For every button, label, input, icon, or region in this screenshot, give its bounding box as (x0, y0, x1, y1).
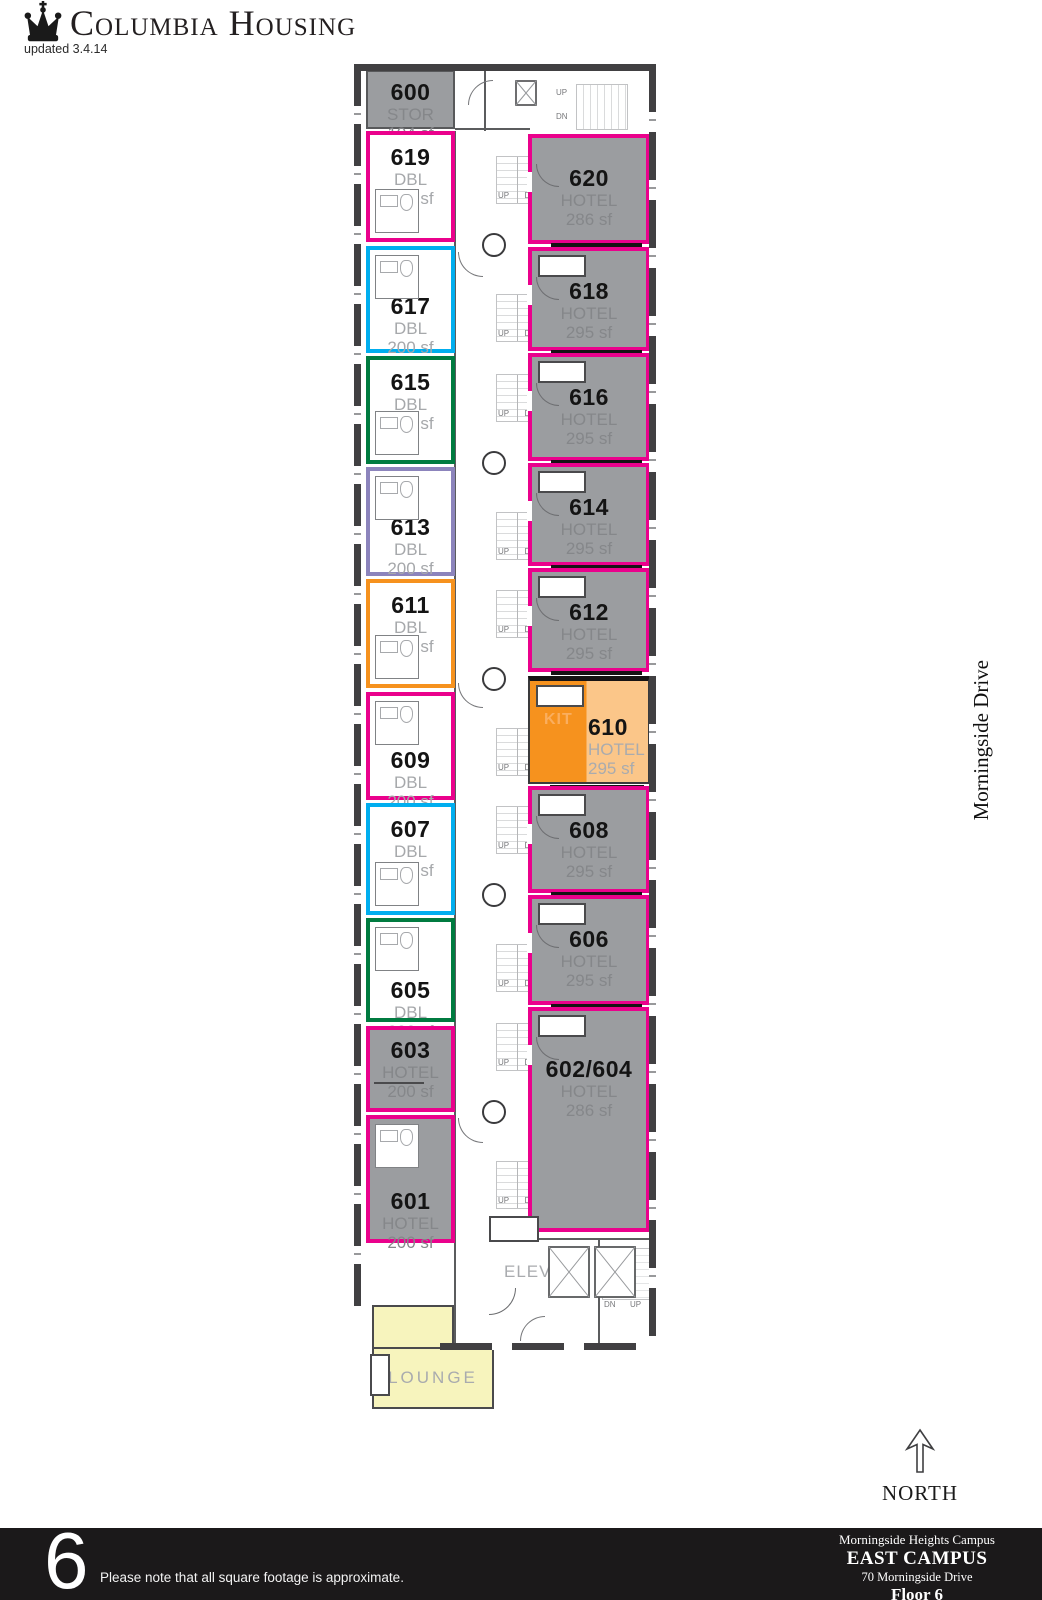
room-number: 610 (588, 715, 645, 740)
door-arc (468, 80, 493, 105)
room-type: DBL (370, 773, 451, 792)
room-606: 606 HOTEL 295 sf (528, 895, 650, 1005)
room-number: 601 (370, 1189, 451, 1214)
room-619: 619 DBL 200 sf (366, 131, 455, 242)
bathroom (375, 635, 419, 679)
stair-up-label: UP (498, 763, 509, 772)
room-sf: 200 sf (370, 559, 451, 578)
wall-top (354, 64, 656, 71)
room-number: 603 (370, 1038, 451, 1063)
room-613: 613 DBL 200 sf (366, 467, 455, 576)
room-617: 617 DBL 200 sf (366, 246, 455, 353)
north-compass: NORTH (868, 1428, 972, 1506)
door-arc (458, 683, 483, 708)
room-sf: 295 sf (532, 862, 646, 881)
brand-title: Columbia Housing (70, 2, 356, 44)
room-sf: 200 sf (370, 1082, 451, 1101)
room-609: 609 DBL 200 sf (366, 692, 455, 800)
room-type: DBL (370, 319, 451, 338)
room-type: HOTEL (532, 410, 646, 429)
room-sf: 200 sf (370, 338, 451, 357)
room-616: 616 HOTEL 295 sf (528, 353, 650, 461)
closet (538, 1015, 586, 1037)
room-sf: 295 sf (588, 759, 645, 778)
stairwell-top (576, 84, 628, 130)
lounge-notch (370, 1354, 390, 1396)
bathroom (375, 476, 419, 520)
wall-left (354, 64, 361, 1307)
curved-wall (489, 1288, 516, 1315)
room-601: 601 HOTEL 200 sf (366, 1115, 455, 1243)
stair-up-label: UP (498, 625, 509, 634)
room-number: 605 (370, 978, 451, 1003)
elevator-shaft-icon (548, 1246, 590, 1298)
room-type: HOTEL (532, 520, 646, 539)
closet (538, 576, 586, 598)
north-label: NORTH (868, 1481, 972, 1506)
room-sf: 295 sf (532, 539, 646, 558)
north-arrow-icon (900, 1428, 940, 1474)
bathroom (375, 411, 419, 455)
room-611: 611 DBL 200 sf (366, 579, 455, 688)
elevator-lobby-wall (528, 1238, 651, 1240)
room-type: HOTEL (532, 952, 646, 971)
closet (538, 794, 586, 816)
stair-up-label: UP (498, 1196, 509, 1205)
room-type: DBL (370, 1003, 451, 1022)
room-605: 605 DBL 200 sf (366, 918, 455, 1022)
room-type: HOTEL (370, 1063, 451, 1082)
room-614: 614 HOTEL 295 sf (528, 463, 650, 566)
room-sf: 295 sf (532, 323, 646, 342)
room-type: HOTEL (532, 1082, 646, 1101)
stair-up-label: UP (556, 88, 567, 97)
stair-up-label: UP (498, 841, 509, 850)
room-618: 618 HOTEL 295 sf (528, 247, 650, 351)
bathroom (375, 189, 419, 233)
wall-right (649, 64, 656, 1350)
room-610: KIT 610 HOTEL 295 sf (528, 676, 650, 784)
room-number: 602/604 (532, 1057, 646, 1082)
street-label: Morningside Drive (958, 640, 1004, 840)
room-sf: 286 sf (532, 210, 646, 229)
room-type: DBL (370, 540, 451, 559)
structural-column (482, 667, 506, 691)
shaft-icon (515, 80, 537, 106)
room-sf: 286 sf (532, 1101, 646, 1120)
closet (538, 903, 586, 925)
stair-up-label: UP (498, 1058, 509, 1067)
closet (538, 361, 586, 383)
structural-column (482, 1100, 506, 1124)
room-sf: 295 sf (532, 644, 646, 663)
room-type: DBL (370, 618, 451, 637)
building-name: EAST CAMPUS (792, 1548, 1042, 1570)
room-number: 619 (370, 145, 451, 170)
room-type: HOTEL (370, 1214, 451, 1233)
bathroom (375, 255, 419, 299)
stair-up-label: UP (498, 329, 509, 338)
closet (538, 471, 586, 493)
campus-name: Morningside Heights Campus (792, 1532, 1042, 1548)
room-608: 608 HOTEL 295 sf (528, 786, 650, 893)
room-type: DBL (370, 170, 451, 189)
structural-column (482, 883, 506, 907)
room-sf: 295 sf (532, 429, 646, 448)
closet (538, 255, 586, 277)
room-type: DBL (370, 842, 451, 861)
stair-up-label: UP (630, 1300, 641, 1309)
room-sf: 295 sf (532, 971, 646, 990)
campus-block: Morningside Heights Campus EAST CAMPUS 7… (792, 1532, 1042, 1600)
building-address: 70 Morningside Drive (792, 1570, 1042, 1585)
floor-number-big: 6 (44, 1528, 89, 1594)
room-number: 607 (370, 817, 451, 842)
elevator-shaft-icon (594, 1246, 636, 1298)
door-arc (458, 1118, 483, 1143)
room-612: 612 HOTEL 295 sf (528, 568, 650, 672)
stair-up-label: UP (498, 547, 509, 556)
shaft-box (489, 1216, 539, 1242)
closet-partition (374, 1082, 424, 1084)
room-615: 615 DBL 200 sf (366, 356, 455, 464)
room-number: 609 (370, 748, 451, 773)
room-603: 603 HOTEL 200 sf (366, 1026, 455, 1112)
footer-bar: 6 Please note that all square footage is… (0, 1528, 1042, 1600)
door-arc (458, 252, 483, 277)
room-type: HOTEL (532, 843, 646, 862)
room-type: HOTEL (532, 304, 646, 323)
bathroom (375, 862, 419, 906)
stair-up-label: UP (498, 979, 509, 988)
room-type: HOTEL (532, 191, 646, 210)
bathroom (375, 1124, 419, 1168)
room-600: 600 STOR 104 sf (366, 70, 455, 129)
stair-dn-label: DN (556, 112, 568, 121)
structural-column (482, 451, 506, 475)
room-602-604: 602/604 HOTEL 286 sf (528, 1007, 650, 1232)
door-arc (520, 1316, 545, 1341)
room-type: STOR (368, 105, 453, 124)
bathroom (375, 927, 419, 971)
room-number: 615 (370, 370, 451, 395)
stair-up-label: UP (498, 191, 509, 200)
lounge-label: LOUNGE (388, 1368, 478, 1388)
room-number: 611 (370, 593, 451, 618)
structural-column (482, 233, 506, 257)
room-620: 620 HOTEL 286 sf (528, 134, 650, 244)
kitchen-label: KIT (544, 711, 573, 729)
closet (536, 685, 584, 707)
vestibule-wall (455, 128, 530, 130)
room-type: HOTEL (588, 740, 645, 759)
stair-dn-label: DN (604, 1300, 616, 1309)
footage-note: Please note that all square footage is a… (100, 1570, 404, 1585)
room-number: 600 (368, 80, 453, 105)
room-type: HOTEL (532, 625, 646, 644)
lounge: LOUNGE (372, 1347, 494, 1409)
room-607: 607 DBL 200 sf (366, 803, 455, 915)
columbia-crown-icon (20, 0, 66, 46)
elevator-label: ELEV (504, 1262, 551, 1282)
floor-plan-page: Columbia Housing updated 3.4.14 600 STOR… (0, 0, 1042, 1600)
room-sf: 200 sf (370, 1233, 451, 1252)
bathroom (375, 701, 419, 745)
stair-up-label: UP (498, 409, 509, 418)
floor-label: Floor 6 (792, 1585, 1042, 1600)
updated-date: updated 3.4.14 (24, 42, 107, 56)
wall-bottom (440, 1343, 656, 1350)
